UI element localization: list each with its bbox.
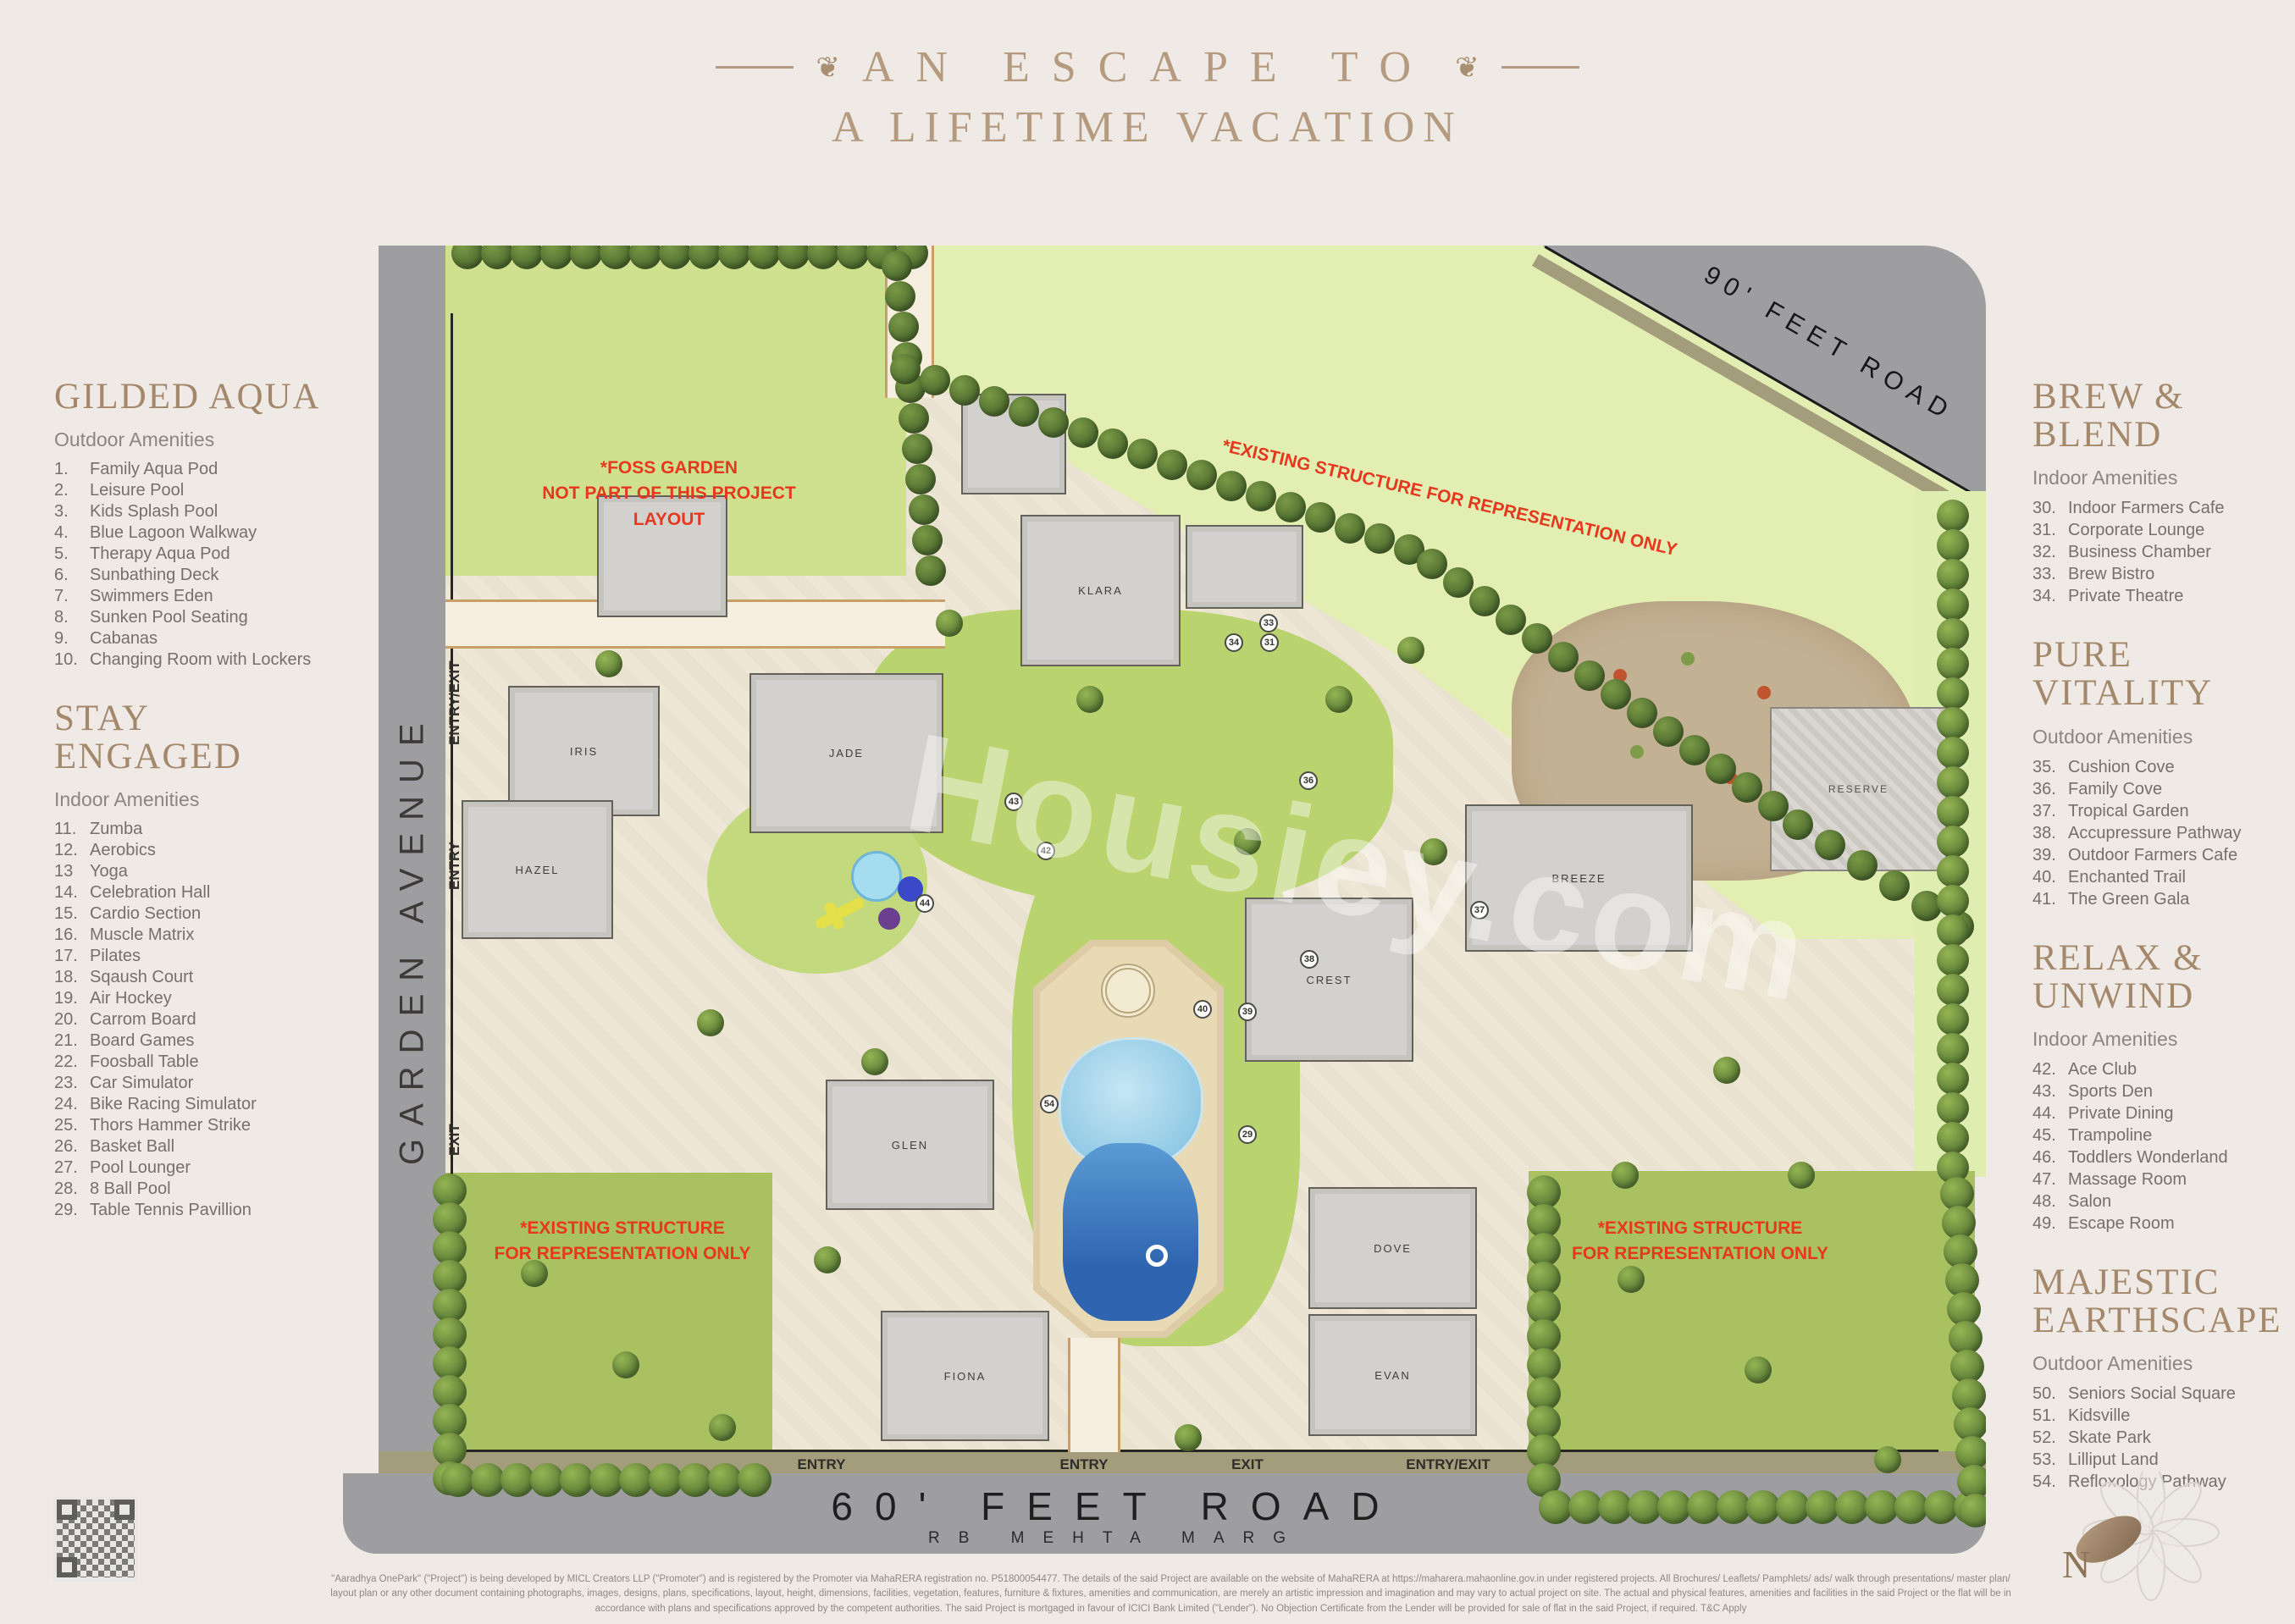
- map-marker: 31: [1260, 633, 1279, 652]
- tree-icon: [1496, 605, 1526, 635]
- tree-icon: [814, 1246, 841, 1273]
- tree-icon: [1937, 855, 1969, 887]
- building-label: DOVE: [1374, 1242, 1412, 1255]
- tree-icon: [1574, 660, 1605, 691]
- building-hazel: HAZEL: [462, 800, 613, 939]
- tree-icon: [1937, 707, 1969, 739]
- map-marker: 43: [1004, 793, 1023, 811]
- tree-icon: [1687, 1490, 1721, 1524]
- list-item: 53.Lilliput Land: [2032, 1449, 2295, 1471]
- tree-icon: [612, 1351, 639, 1378]
- tree-icon: [1098, 428, 1128, 459]
- section-gilded-aqua: GILDED AQUA Outdoor Amenities 1.Family A…: [54, 378, 346, 671]
- building-label: KLARA: [1078, 584, 1123, 597]
- tree-icon: [1009, 396, 1039, 427]
- list-item: 36.Family Cove: [2032, 778, 2295, 800]
- qr-eye: [57, 1557, 77, 1577]
- tree-icon: [1420, 838, 1447, 865]
- list-item: 6.Sunbathing Deck: [54, 565, 346, 586]
- building-label: JADE: [829, 747, 864, 760]
- building-klara: KLARA: [1020, 515, 1181, 666]
- tree-icon: [1937, 826, 1969, 858]
- note-line: NOT PART OF THIS PROJECT LAYOUT: [512, 481, 826, 533]
- list-item: 43.Sports Den: [2032, 1080, 2295, 1102]
- building-label: FIONA: [944, 1370, 987, 1383]
- tree-icon: [697, 1009, 724, 1036]
- tree-icon: [1612, 1162, 1639, 1189]
- fleur-icon: ❦: [816, 53, 840, 82]
- tree-icon: [1937, 974, 1969, 1006]
- tree-icon: [1937, 677, 1969, 710]
- page-title: ❦ AN ESCAPE TO ❦ A LIFETIME VACATION: [0, 42, 2295, 152]
- tree-icon: [885, 281, 915, 312]
- list-item: 15.Cardio Section: [54, 903, 346, 925]
- map-marker: 44: [915, 894, 934, 913]
- tree-icon: [1335, 513, 1365, 544]
- amenity-list: 35.Cushion Cove36.Family Cove37.Tropical…: [2032, 756, 2295, 910]
- list-item: 35.Cushion Cove: [2032, 756, 2295, 778]
- tree-icon: [1657, 1490, 1691, 1524]
- section-heading: STAY ENGAGED: [54, 699, 346, 776]
- gate-label-entry-exit: ENTRY/EXIT: [445, 653, 465, 753]
- tree-icon: [882, 251, 912, 281]
- tree-icon: [920, 365, 950, 395]
- tree-icon: [1847, 850, 1877, 881]
- map-marker: 36: [1299, 771, 1318, 790]
- tree-icon: [1713, 1057, 1740, 1084]
- tree-icon: [902, 434, 932, 464]
- list-item: 45.Trampoline: [2032, 1124, 2295, 1146]
- building-breeze: BREEZE: [1465, 804, 1693, 952]
- list-item: 17.Pilates: [54, 946, 346, 967]
- tree-icon: [500, 1463, 534, 1497]
- section-brew-blend: BREW & BLEND Indoor Amenities 30.Indoor …: [2032, 378, 2295, 607]
- tree-icon: [1937, 1033, 1969, 1065]
- rera-disclaimer: "Aaradhya OnePark" ("Project") is being …: [330, 1572, 2011, 1617]
- section-subheading: Outdoor Amenities: [54, 428, 346, 451]
- tree-icon: [936, 610, 963, 637]
- amenity-list: 42.Ace Club43.Sports Den44.Private Dinin…: [2032, 1058, 2295, 1235]
- note-line: FOR REPRESENTATION ONLY: [470, 1241, 775, 1267]
- plot-boundary-line: [451, 1450, 1938, 1452]
- tree-icon: [1806, 1490, 1839, 1524]
- play-equipment: [878, 908, 900, 930]
- tree-icon: [1568, 1490, 1602, 1524]
- map-marker: 29: [1238, 1125, 1257, 1144]
- amenity-list: 11.Zumba12.Aerobics13Yoga14.Celebration …: [54, 819, 346, 1221]
- tree-icon: [1746, 1490, 1780, 1524]
- tree-icon: [979, 386, 1009, 417]
- list-item: 10.Changing Room with Lockers: [54, 649, 346, 671]
- list-item: 23.Car Simulator: [54, 1073, 346, 1094]
- list-item: 31.Corporate Lounge: [2032, 519, 2295, 541]
- list-item: 38.Accupressure Pathway: [2032, 822, 2295, 844]
- list-item: 7.Swimmers Eden: [54, 586, 346, 607]
- list-item: 19.Air Hockey: [54, 988, 346, 1009]
- tree-icon: [1443, 567, 1474, 598]
- section-heading: PURE VITALITY: [2032, 636, 2295, 712]
- tree-icon: [1548, 642, 1579, 672]
- tree-icon: [1937, 1122, 1969, 1154]
- amenity-list: 30.Indoor Farmers Cafe31.Corporate Loung…: [2032, 497, 2295, 607]
- tree-icon: [708, 1463, 742, 1497]
- tree-icon: [1937, 766, 1969, 798]
- tree-icon: [471, 1463, 505, 1497]
- section-relax-unwind: RELAX & UNWIND Indoor Amenities 42.Ace C…: [2032, 939, 2295, 1235]
- tree-icon: [1717, 1490, 1750, 1524]
- list-item: 34.Private Theatre: [2032, 585, 2295, 607]
- tree-icon: [1397, 637, 1424, 664]
- qr-code: [57, 1500, 135, 1577]
- tree-icon: [1894, 1490, 1928, 1524]
- list-item: 50.Seniors Social Square: [2032, 1383, 2295, 1405]
- map-marker: 42: [1037, 842, 1055, 860]
- tree-icon: [1937, 1003, 1969, 1036]
- tree-icon: [1937, 796, 1969, 828]
- tree-icon: [1234, 828, 1261, 855]
- map-marker: 54: [1040, 1095, 1059, 1113]
- list-item: 8.Sunken Pool Seating: [54, 607, 346, 628]
- tree-icon: [949, 375, 980, 406]
- tree-icon: [1937, 588, 1969, 621]
- tree-icon: [1627, 698, 1657, 728]
- title-line-2: A LIFETIME VACATION: [0, 102, 2295, 152]
- note-line: *EXISTING STRUCTURE: [1546, 1216, 1855, 1241]
- tree-icon: [915, 555, 946, 586]
- north-indicator: N: [2058, 1472, 2287, 1620]
- tree-icon: [560, 1463, 594, 1497]
- brochure-page: { "title": { "line1": "AN ESCAPE TO", "l…: [0, 0, 2295, 1623]
- tree-icon: [888, 312, 919, 342]
- foss-garden-note: *FOSS GARDEN NOT PART OF THIS PROJECT LA…: [512, 456, 826, 533]
- tree-icon: [1732, 772, 1762, 803]
- list-item: 37.Tropical Garden: [2032, 800, 2295, 822]
- kids-splash-pool: [851, 851, 902, 902]
- fleur-icon: ❦: [1455, 53, 1479, 82]
- list-item: 3.Kids Splash Pool: [54, 501, 346, 522]
- tree-icon: [912, 525, 943, 555]
- amenities-column-right: BREW & BLEND Indoor Amenities 30.Indoor …: [2032, 378, 2295, 1522]
- tree-icon: [1959, 1494, 1986, 1527]
- section-subheading: Indoor Amenities: [2032, 1028, 2295, 1051]
- gate-label-exit: EXIT: [445, 1118, 465, 1162]
- list-item: 44.Private Dining: [2032, 1102, 2295, 1124]
- building-iris: IRIS: [508, 686, 660, 816]
- section-heading: GILDED AQUA: [54, 378, 346, 416]
- tree-icon: [1937, 737, 1969, 769]
- tree-icon: [1364, 523, 1395, 554]
- list-item: 2.Leisure Pool: [54, 480, 346, 501]
- map-marker: 40: [1193, 1000, 1212, 1019]
- blue-lagoon-pool: [1063, 1143, 1198, 1321]
- list-item: 24.Bike Racing Simulator: [54, 1094, 346, 1115]
- tree-icon: [1937, 885, 1969, 917]
- list-item: 4.Blue Lagoon Walkway: [54, 522, 346, 544]
- building-jade: JADE: [749, 673, 943, 833]
- tree-icon: [1175, 1424, 1202, 1451]
- map-marker: 38: [1300, 950, 1319, 969]
- list-item: 29.Table Tennis Pavillion: [54, 1200, 346, 1221]
- tree-icon: [1924, 1490, 1958, 1524]
- list-item: 22.Foosball Table: [54, 1052, 346, 1073]
- list-item: 47.Massage Room: [2032, 1168, 2295, 1190]
- building-label: BREEZE: [1551, 872, 1606, 885]
- compass-flower-icon: N: [2058, 1472, 2287, 1620]
- tree-icon: [905, 464, 936, 494]
- pool-float: [1146, 1245, 1168, 1267]
- list-item: 30.Indoor Farmers Cafe: [2032, 497, 2295, 519]
- section-heading: MAJESTIC EARTHSCAPE: [2032, 1263, 2244, 1340]
- fountain-plaza: [1101, 964, 1155, 1018]
- list-item: 14.Celebration Hall: [54, 882, 346, 903]
- list-item: 48.Salon: [2032, 1190, 2295, 1212]
- tree-icon: [1679, 735, 1710, 765]
- tree-icon: [1601, 679, 1631, 710]
- list-item: 16.Muscle Matrix: [54, 925, 346, 946]
- map-marker: 33: [1259, 614, 1278, 632]
- building-block: [1186, 525, 1303, 609]
- tree-icon: [890, 354, 921, 384]
- tree-icon: [1653, 716, 1684, 747]
- list-item: 51.Kidsville: [2032, 1405, 2295, 1427]
- tree-icon: [1783, 809, 1813, 840]
- section-heading: RELAX & UNWIND: [2032, 939, 2295, 1015]
- site-plan-map: RESERVE IRIS JADE KLARA HAZEL BREEZE CRE…: [343, 246, 1986, 1554]
- list-item: 41.The Green Gala: [2032, 888, 2295, 910]
- list-item: 32.Business Chamber: [2032, 541, 2295, 563]
- tree-icon: [595, 650, 622, 677]
- list-item: 28.8 Ball Pool: [54, 1179, 346, 1200]
- reserve-plot: RESERVE: [1770, 707, 1947, 871]
- list-item: 12.Aerobics: [54, 840, 346, 861]
- list-item: 49.Escape Room: [2032, 1212, 2295, 1235]
- building-label: EVAN: [1374, 1369, 1410, 1382]
- list-item: 26.Basket Ball: [54, 1136, 346, 1157]
- tree-icon: [1598, 1490, 1632, 1524]
- gate-label-entry: ENTRY: [783, 1456, 860, 1473]
- building-dove: DOVE: [1308, 1187, 1477, 1309]
- tree-icon: [1246, 481, 1276, 511]
- tree-icon: [1937, 1063, 1969, 1095]
- section-subheading: Indoor Amenities: [54, 788, 346, 811]
- list-item: 52.Skate Park: [2032, 1427, 2295, 1449]
- list-item: 18.Sqaush Court: [54, 967, 346, 988]
- building-label: CREST: [1306, 974, 1352, 986]
- section-stay-engaged: STAY ENGAGED Indoor Amenities 11.Zumba12…: [54, 699, 346, 1221]
- tree-icon: [1216, 471, 1247, 501]
- tree-icon: [619, 1463, 653, 1497]
- tree-icon: [1879, 870, 1910, 901]
- list-item: 13Yoga: [54, 861, 346, 882]
- tree-icon: [1628, 1490, 1662, 1524]
- existing-structure-note-right: *EXISTING STRUCTURE FOR REPRESENTATION O…: [1546, 1216, 1855, 1268]
- gate-label-entry: ENTRY: [445, 838, 465, 894]
- tree-icon: [1937, 500, 1969, 532]
- ornament-line: [1501, 66, 1579, 69]
- tree-icon: [1618, 1266, 1645, 1293]
- map-marker: 34: [1225, 633, 1243, 652]
- garden-avenue-label: GARDEN AVENUE: [380, 707, 445, 1168]
- map-marker: 39: [1238, 1003, 1257, 1021]
- building-fiona: FIONA: [881, 1311, 1049, 1441]
- list-item: 9.Cabanas: [54, 628, 346, 649]
- north-letter: N: [2062, 1543, 2090, 1586]
- tree-icon: [1776, 1490, 1810, 1524]
- section-subheading: Indoor Amenities: [2032, 467, 2295, 489]
- rb-mehta-marg-label: RB MEHTA MARG: [820, 1529, 1413, 1548]
- tree-icon: [899, 403, 929, 434]
- list-item: 20.Carrom Board: [54, 1009, 346, 1030]
- tree-icon: [1937, 914, 1969, 947]
- existing-structure-note-left: *EXISTING STRUCTURE FOR REPRESENTATION O…: [470, 1216, 775, 1268]
- tree-icon: [1522, 623, 1552, 654]
- tree-icon: [1038, 407, 1069, 438]
- qr-eye: [114, 1500, 135, 1520]
- tree-icon: [1788, 1162, 1815, 1189]
- tree-icon: [589, 1463, 623, 1497]
- list-item: 27.Pool Lounger: [54, 1157, 346, 1179]
- note-line: *FOSS GARDEN: [512, 456, 826, 481]
- list-item: 11.Zumba: [54, 819, 346, 840]
- building-label: HAZEL: [516, 864, 560, 876]
- tree-icon: [1865, 1490, 1899, 1524]
- ornament-line: [716, 66, 794, 69]
- tree-icon: [1937, 944, 1969, 976]
- list-item: 40.Enchanted Trail: [2032, 866, 2295, 888]
- gate-label-entry-exit: ENTRY/EXIT: [1393, 1456, 1503, 1473]
- list-item: 1.Family Aqua Pod: [54, 459, 346, 480]
- tree-icon: [1068, 417, 1098, 448]
- tree-icon: [709, 1414, 736, 1441]
- amenity-list: 1.Family Aqua Pod2.Leisure Pool3.Kids Sp…: [54, 459, 346, 671]
- tree-icon: [861, 1048, 888, 1075]
- tree-icon: [1937, 559, 1969, 591]
- tree-icon: [1325, 686, 1352, 713]
- tree-icon: [1835, 1490, 1869, 1524]
- list-item: 5.Therapy Aqua Pod: [54, 544, 346, 565]
- section-majestic-earthscape: MAJESTIC EARTHSCAPE Outdoor Amenities 50…: [2032, 1263, 2295, 1493]
- tree-icon: [1275, 492, 1306, 522]
- tree-icon: [1937, 618, 1969, 650]
- list-item: 21.Board Games: [54, 1030, 346, 1052]
- entry-driveway: [1068, 1338, 1120, 1452]
- tree-icon: [530, 1463, 564, 1497]
- tree-icon: [1745, 1356, 1772, 1384]
- section-subheading: Outdoor Amenities: [2032, 726, 2295, 748]
- qr-eye: [57, 1500, 77, 1520]
- building-label: IRIS: [570, 745, 598, 758]
- section-pure-vitality: PURE VITALITY Outdoor Amenities 35.Cushi…: [2032, 636, 2295, 909]
- tree-icon: [1076, 686, 1103, 713]
- list-item: 46.Toddlers Wonderland: [2032, 1146, 2295, 1168]
- section-subheading: Outdoor Amenities: [2032, 1352, 2295, 1375]
- tree-icon: [909, 494, 939, 525]
- tree-icon: [738, 1463, 771, 1497]
- tree-icon: [1186, 460, 1217, 490]
- list-item: 42.Ace Club: [2032, 1058, 2295, 1080]
- tree-icon: [1469, 586, 1500, 616]
- list-item: 25.Thors Hammer Strike: [54, 1115, 346, 1136]
- gate-label-exit: EXIT: [1211, 1456, 1284, 1473]
- section-heading: BREW & BLEND: [2032, 378, 2295, 454]
- gate-label-entry: ENTRY: [1046, 1456, 1122, 1473]
- tree-icon: [1937, 1092, 1969, 1124]
- map-marker: 37: [1470, 901, 1489, 920]
- building-crest: CREST: [1245, 898, 1413, 1062]
- building-evan: EVAN: [1308, 1314, 1477, 1436]
- reserve-label: RESERVE: [1828, 783, 1889, 795]
- tree-icon: [1157, 450, 1187, 480]
- 60-feet-road-label: 60' FEET ROAD: [820, 1483, 1413, 1529]
- tree-icon: [1874, 1446, 1901, 1473]
- tree-icon: [1937, 529, 1969, 561]
- tree-icon: [678, 1463, 712, 1497]
- building-label: GLEN: [892, 1139, 928, 1152]
- tree-icon: [441, 1463, 475, 1497]
- tree-icon: [1417, 549, 1447, 579]
- list-item: 33.Brew Bistro: [2032, 563, 2295, 585]
- tree-icon: [1937, 648, 1969, 680]
- note-line: *EXISTING STRUCTURE: [470, 1216, 775, 1241]
- tree-icon: [1305, 502, 1336, 533]
- building-glen: GLEN: [826, 1080, 994, 1210]
- amenities-column-left: GILDED AQUA Outdoor Amenities 1.Family A…: [54, 378, 346, 1250]
- tree-icon: [1706, 754, 1736, 784]
- title-line-1: AN ESCAPE TO: [862, 42, 1433, 92]
- tree-icon: [1539, 1490, 1573, 1524]
- tree-icon: [1815, 830, 1845, 860]
- list-item: 39.Outdoor Farmers Cafe: [2032, 844, 2295, 866]
- tree-icon: [649, 1463, 683, 1497]
- tree-icon: [1127, 439, 1158, 469]
- note-line: FOR REPRESENTATION ONLY: [1546, 1241, 1855, 1267]
